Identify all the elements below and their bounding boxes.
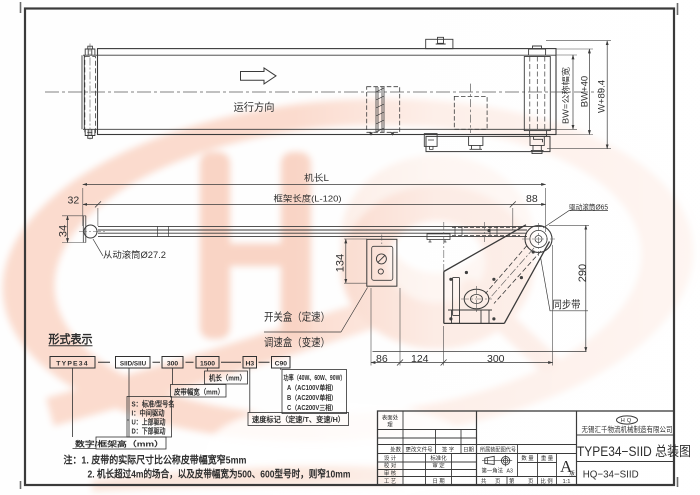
svg-text:驱动滚筒Ø65: 驱动滚筒Ø65	[569, 202, 608, 211]
svg-text:TYPE34: TYPE34	[56, 360, 89, 367]
svg-text:88: 88	[526, 193, 538, 205]
svg-text:开关盒（定速）: 开关盒（定速）	[264, 310, 330, 324]
svg-text:C（AC200V三相）: C（AC200V三相）	[287, 403, 337, 412]
svg-text:300: 300	[167, 360, 179, 367]
svg-text:机长（mm）: 机长（mm）	[209, 372, 246, 382]
svg-text:D：下部驱动: D：下部驱动	[132, 427, 166, 436]
svg-text:日 期: 日 期	[432, 478, 444, 485]
svg-text:页: 页	[528, 478, 534, 485]
svg-text:W+89.4: W+89.4	[597, 80, 608, 113]
svg-text:TYPE34−SIID 总装图: TYPE34−SIID 总装图	[577, 444, 691, 459]
svg-text:调速盒（变速）: 调速盒（变速）	[264, 335, 330, 349]
svg-text:标准化: 标准化	[430, 454, 447, 462]
svg-text:第: 第	[509, 477, 515, 485]
svg-text:无锡汇千物流机械制造有限公司: 无锡汇千物流机械制造有限公司	[582, 425, 673, 434]
svg-text:32: 32	[68, 195, 80, 207]
svg-text:数 量: 数 量	[521, 454, 534, 462]
svg-text:290: 290	[577, 264, 589, 282]
svg-text:300: 300	[487, 353, 505, 365]
svg-text:1:1: 1:1	[562, 479, 570, 485]
svg-text:A3: A3	[507, 468, 513, 474]
svg-text:HQ−34−SIID: HQ−34−SIID	[583, 469, 639, 481]
svg-text:I：中间驱动: I：中间驱动	[132, 409, 165, 418]
svg-text:同步带: 同步带	[553, 299, 581, 311]
svg-text:1500: 1500	[200, 360, 215, 367]
svg-text:BW=公称幅宽: BW=公称幅宽	[561, 67, 571, 124]
svg-text:A（AC100V单相）: A（AC100V单相）	[287, 383, 337, 392]
svg-text:U：上部驱动: U：上部驱动	[132, 418, 166, 427]
svg-text:日期: 日期	[463, 447, 474, 454]
svg-text:工 艺: 工 艺	[384, 478, 397, 485]
svg-text:更改文件号: 更改文件号	[406, 446, 434, 454]
svg-text:从动滚筒Ø27.2: 从动滚筒Ø27.2	[103, 249, 166, 260]
svg-text:功率（40W、60W、90W）: 功率（40W、60W、90W）	[284, 373, 346, 382]
svg-text:重 量: 重 量	[541, 454, 554, 462]
svg-text:C90: C90	[275, 360, 288, 367]
svg-text:共: 共	[481, 477, 487, 485]
svg-text:处数: 处数	[390, 446, 401, 454]
svg-text:注：1. 皮带的实际尺寸比公称皮带幅宽窄5mm: 注：1. 皮带的实际尺寸比公称皮带幅宽窄5mm	[64, 453, 247, 466]
svg-text:BW+40: BW+40	[580, 76, 591, 107]
svg-text:审 核: 审 核	[384, 469, 397, 477]
svg-text:SIID/SIIU: SIID/SIIU	[120, 360, 147, 367]
svg-text:124: 124	[411, 353, 429, 365]
svg-text:H3: H3	[245, 360, 254, 367]
svg-text:皮带幅宽（mm）: 皮带幅宽（mm）	[173, 386, 224, 396]
svg-text:86: 86	[376, 353, 388, 365]
svg-text:34: 34	[58, 225, 70, 237]
svg-text:形式表示: 形式表示	[49, 332, 93, 346]
svg-text:框架长度(L-120): 框架长度(L-120)	[274, 194, 342, 204]
svg-text:B（AC200V单相）: B（AC200V单相）	[287, 393, 337, 402]
svg-text:版: 版	[570, 469, 575, 477]
svg-text:设 计: 设 计	[384, 454, 397, 462]
svg-text:第一角法: 第一角法	[482, 466, 504, 474]
svg-text:理: 理	[387, 422, 393, 429]
svg-text:机长L: 机长L	[304, 172, 329, 183]
svg-text:134: 134	[335, 254, 347, 272]
svg-text:审 定: 审 定	[432, 462, 445, 470]
svg-text:HQ: HQ	[621, 418, 633, 424]
svg-text:页: 页	[495, 478, 501, 485]
svg-text:2. 机长超过4m的场合，以及皮带幅宽为500、600型号时: 2. 机长超过4m的场合，以及皮带幅宽为500、600型号时，则窄10mm	[88, 467, 351, 480]
svg-text:S：标准/型号名: S：标准/型号名	[132, 400, 175, 409]
svg-text:运行方向: 运行方向	[234, 101, 275, 114]
svg-text:签 字: 签 字	[442, 446, 454, 454]
svg-text:校 对: 校 对	[384, 462, 397, 470]
svg-text:速度标记（定速/T、变速/H）: 速度标记（定速/T、变速/H）	[252, 414, 345, 424]
svg-text:比 例: 比 例	[540, 477, 552, 485]
svg-text:数字/框架高（mm）: 数字/框架高（mm）	[75, 439, 164, 449]
svg-text:表面处: 表面处	[382, 414, 399, 422]
svg-text:所属装配图代号: 所属装配图代号	[480, 446, 517, 454]
